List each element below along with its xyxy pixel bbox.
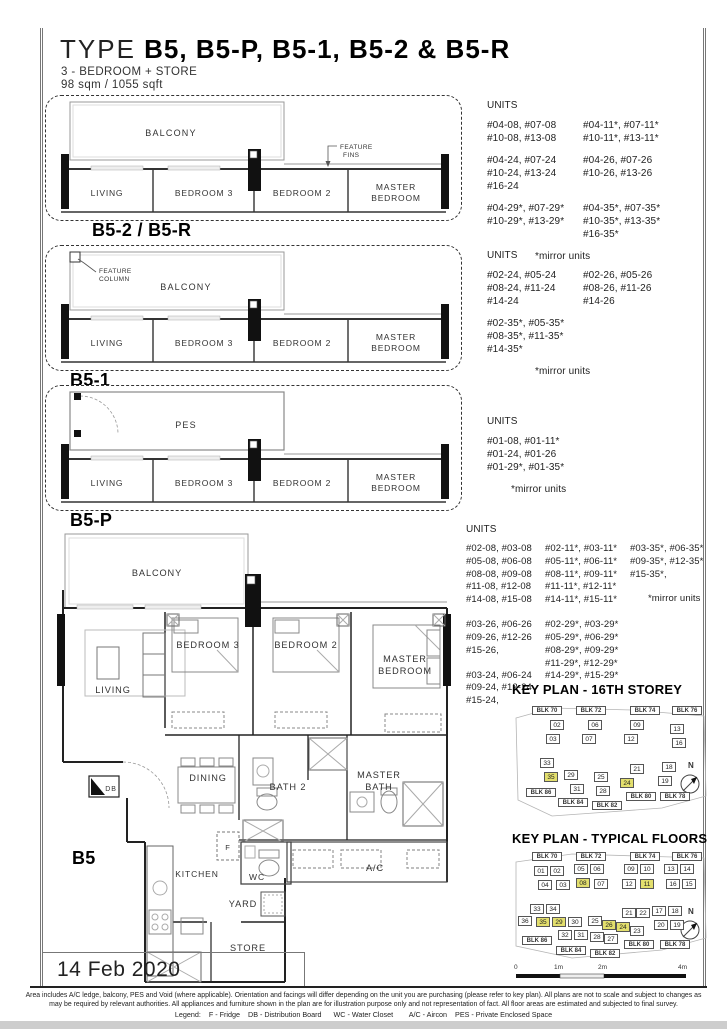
scale-label: 1m	[554, 964, 563, 971]
unit-list: #02-24, #05-24 #08-24, #11-24 #14-24	[487, 269, 583, 308]
key-plan-16: N BLK 70 BLK 72 BLK 74 BLK 76 02 03 06 0…	[512, 700, 714, 828]
block-label: BLK 80	[624, 940, 654, 949]
unit-list: #04-29*, #07-29* #10-29*, #13-29*	[487, 202, 583, 241]
footer-divider	[30, 986, 707, 988]
unit-marker: 02	[550, 720, 564, 730]
north-label: N	[688, 907, 694, 916]
units-title: UNITS	[487, 99, 717, 112]
footer-disclaimer-line2: may be required by relevant authorities.…	[0, 1000, 727, 1009]
page-frame-left	[40, 28, 43, 988]
scale-label: 0	[514, 964, 518, 971]
unit-marker: 30	[568, 917, 582, 927]
dining-furniture	[178, 758, 235, 813]
unit-marker-highlighted: 29	[552, 917, 566, 927]
floor-plan-b5-container: BALCONY LIVING BEDROOM 3 BEDROOM 2 MASTE…	[45, 530, 470, 985]
master-label-1: MASTER	[383, 654, 427, 664]
block-label: BLK 72	[576, 706, 606, 715]
unit-marker: 12	[622, 879, 636, 889]
units-panel-b5-2-b5-r: UNITS #04-08, #07-08 #10-08, #13-08#04-1…	[487, 99, 717, 263]
unit-list: #04-35*, #07-35* #10-35*, #13-35* #16-35…	[583, 202, 683, 241]
bedroom2-label: BEDROOM 2	[273, 478, 331, 488]
scale-label: 2m	[598, 964, 607, 971]
variant-label-b5-2-b5-r: B5-2 / B5-R	[92, 220, 191, 241]
balcony-label: BALCONY	[145, 128, 196, 138]
floor-plan-b5: BALCONY LIVING BEDROOM 3 BEDROOM 2 MASTE…	[45, 530, 470, 985]
unit-list: #04-26, #07-26 #10-26, #13-26	[583, 154, 683, 193]
unit-marker: 07	[582, 734, 596, 744]
unit-marker: 16	[672, 738, 686, 748]
compass-icon: N	[681, 761, 699, 793]
living-label: LIVING	[91, 478, 124, 488]
block-label: BLK 76	[672, 706, 702, 715]
bedroom2-label: BEDROOM 2	[273, 188, 331, 198]
unit-list: #02-26, #05-26 #08-26, #11-26 #14-26	[583, 269, 683, 308]
bedroom3-furniture	[167, 614, 238, 728]
bedroom2-label: BEDROOM 2	[273, 338, 331, 348]
unit-marker: 12	[624, 734, 638, 744]
plan-box-b5-1: FEATURE COLUMN BALCONY LIVING BEDROOM 3 …	[45, 245, 462, 371]
unit-marker-highlighted: 26	[602, 920, 616, 930]
block-label: BLK 74	[630, 706, 660, 715]
block-label: BLK 70	[532, 706, 562, 715]
living-label: LIVING	[91, 188, 124, 198]
block-label: BLK 76	[672, 852, 702, 861]
balcony-label: BALCONY	[160, 282, 211, 292]
units-panel-b5-p: UNITS #01-08, #01-11* #01-24, #01-26 #01…	[487, 415, 717, 496]
bedroom3-label: BEDROOM 3	[175, 338, 233, 348]
unit-marker: 36	[518, 916, 532, 926]
unit-marker: 22	[636, 908, 650, 918]
unit-marker: 03	[556, 880, 570, 890]
unit-marker-highlighted: 24	[616, 922, 630, 932]
mirror-units-note: *mirror units	[511, 483, 717, 496]
feature-fins-annotation: FEATURE FINS	[326, 144, 373, 167]
unit-marker: 32	[558, 930, 572, 940]
unit-marker: 34	[546, 904, 560, 914]
unit-marker-highlighted: 35	[536, 917, 550, 927]
block-label: BLK 86	[526, 788, 556, 797]
bedroom3-label: BEDROOM 3	[175, 478, 233, 488]
unit-marker-highlighted: 24	[620, 778, 634, 788]
ledge-cross-box	[243, 820, 283, 842]
page-edge-strip	[0, 1021, 727, 1029]
unit-list: #02-08, #03-08 #05-08, #06-08 #08-08, #0…	[466, 543, 545, 607]
title-prefix: TYPE	[60, 34, 136, 64]
unit-marker: 04	[538, 880, 552, 890]
block-label: BLK 84	[558, 798, 588, 807]
plan-box-b5-p: PES LIVING BEDROOM 3 BEDROOM 2 MASTER BE…	[45, 385, 462, 511]
variant-label-b5: B5	[72, 848, 96, 869]
unit-marker: 09	[624, 864, 638, 874]
unit-marker: 10	[640, 864, 654, 874]
block-label: BLK 80	[626, 792, 656, 801]
master-bath-label-2: BATH	[365, 782, 392, 792]
floor-plan-b5-2-b5-r: FEATURE FINS BALCONY LIVING BEDROOM 3 BE…	[46, 96, 459, 217]
variant-label-b5-p: B5-P	[70, 510, 112, 531]
unit-marker: 19	[670, 920, 684, 930]
mirror-units-note: *mirror units	[535, 365, 717, 378]
master-label-2: BEDROOM	[371, 343, 421, 353]
unit-marker: 14	[680, 864, 694, 874]
master-label-1: MASTER	[376, 332, 416, 342]
key-plan-typical-title: KEY PLAN - TYPICAL FLOORS	[512, 831, 707, 846]
unit-marker: 18	[668, 906, 682, 916]
unit-marker: 25	[594, 772, 608, 782]
living-label: LIVING	[91, 338, 124, 348]
block-label: BLK 86	[522, 936, 552, 945]
plan-box-b5-2-b5-r: FEATURE FINS BALCONY LIVING BEDROOM 3 BE…	[45, 95, 462, 221]
master-bath-fixtures	[350, 782, 443, 826]
unit-marker: 31	[574, 930, 588, 940]
scale-bar	[516, 974, 686, 978]
bath2-fixtures	[253, 738, 347, 810]
unit-marker: 28	[590, 932, 604, 942]
bedroom3-label: BEDROOM 3	[176, 640, 239, 650]
master-label-2: BEDROOM	[371, 193, 421, 203]
subtitle-bedroom: 3 - BEDROOM + STORE	[61, 66, 197, 78]
title-main: B5, B5-P, B5-1, B5-2 & B5-R	[144, 34, 510, 64]
master-label-1: MASTER	[376, 472, 416, 482]
unit-marker: 03	[546, 734, 560, 744]
footer-disclaimer-line1: Area includes A/C ledge, balcony, PES an…	[0, 991, 727, 1000]
unit-list: #03-26, #06-26 #09-26, #12-26 #15-26,	[466, 619, 545, 657]
scale-label: 4m	[678, 964, 687, 971]
bedroom3-label: BEDROOM 3	[175, 188, 233, 198]
unit-marker: 20	[654, 920, 668, 930]
wc-label: WC	[249, 872, 265, 882]
unit-marker: 09	[630, 720, 644, 730]
unit-marker: 31	[570, 784, 584, 794]
bath2-label: BATH 2	[270, 782, 307, 792]
feature-fins-label-2: FINS	[343, 152, 360, 159]
unit-list: #04-24, #07-24 #10-24, #13-24 #16-24	[487, 154, 583, 193]
unit-marker-highlighted: 35	[544, 772, 558, 782]
unit-marker: 15	[682, 879, 696, 889]
block-label: BLK 84	[556, 946, 586, 955]
balcony-label: BALCONY	[132, 568, 182, 578]
unit-list: #03-35*, #06-35* #09-35*, #12-35* #15-35…	[630, 543, 722, 581]
unit-marker: 07	[594, 879, 608, 889]
unit-list: #01-08, #01-11* #01-24, #01-26 #01-29*, …	[487, 435, 627, 474]
unit-marker: 21	[622, 908, 636, 918]
feature-column-annotation: FEATURE COLUMN	[78, 259, 132, 283]
floor-plan-b5-p: PES LIVING BEDROOM 3 BEDROOM 2 MASTER BE…	[46, 386, 459, 507]
floor-plan-page: { "page": { "title_prefix": "TYPE", "tit…	[0, 0, 727, 1029]
feature-column-label-1: FEATURE	[99, 268, 132, 275]
block-label: BLK 78	[660, 792, 690, 801]
block-label: BLK 78	[660, 940, 690, 949]
unit-marker: 05	[574, 864, 588, 874]
units-title: UNITS	[466, 523, 722, 536]
unit-list: #02-11*, #03-11* #05-11*, #06-11* #08-11…	[545, 543, 630, 607]
unit-marker-highlighted: 11	[640, 879, 654, 889]
north-label: N	[688, 761, 694, 770]
unit-marker: 28	[596, 786, 610, 796]
unit-marker: 17	[652, 906, 666, 916]
feature-column-label-2: COLUMN	[99, 276, 130, 283]
unit-list: #02-35*, #05-35* #08-35*, #11-35* #14-35…	[487, 317, 583, 356]
date-stamp: 14 Feb 2020	[42, 952, 305, 988]
block-label: BLK 70	[532, 852, 562, 861]
unit-marker-highlighted: 08	[576, 878, 590, 888]
floor-plan-b5-1: FEATURE COLUMN BALCONY LIVING BEDROOM 3 …	[46, 246, 459, 367]
unit-marker: 06	[590, 864, 604, 874]
yard-fixtures	[261, 892, 285, 916]
unit-marker: 21	[630, 764, 644, 774]
unit-list: #04-11*, #07-11* #10-11*, #13-11*	[583, 119, 683, 145]
block-label: BLK 74	[630, 852, 660, 861]
unit-marker: 13	[670, 724, 684, 734]
unit-marker: 33	[530, 904, 544, 914]
unit-marker: 13	[664, 864, 678, 874]
unit-marker: 18	[662, 762, 676, 772]
master-bath-label-1: MASTER	[357, 770, 401, 780]
unit-marker: 06	[588, 720, 602, 730]
subtitle-area: 98 sqm / 1055 sqft	[61, 79, 163, 91]
unit-list: #04-08, #07-08 #10-08, #13-08	[487, 119, 583, 145]
kitchen-label: KITCHEN	[175, 869, 219, 879]
master-label-2: BEDROOM	[371, 483, 421, 493]
key-plan-16-title: KEY PLAN - 16TH STOREY	[512, 682, 682, 697]
unit-marker: 01	[534, 866, 548, 876]
footer-legend: Legend: F - Fridge DB - Distribution Boa…	[0, 1010, 727, 1019]
bedroom2-furniture	[273, 614, 349, 728]
dining-label: DINING	[189, 773, 227, 783]
units-title: UNITS	[487, 249, 717, 262]
mirror-units-note: *mirror units	[648, 593, 722, 606]
units-title: UNITS	[487, 415, 717, 428]
footer: Area includes A/C ledge, balcony, PES an…	[0, 991, 727, 1019]
unit-marker: 29	[564, 770, 578, 780]
units-panel-b5-1: UNITS #02-24, #05-24 #08-24, #11-24 #14-…	[487, 249, 717, 378]
fridge-label: F	[225, 843, 230, 852]
yard-label: YARD	[229, 899, 257, 909]
unit-list	[583, 317, 683, 356]
ac-label: A/C	[366, 863, 384, 873]
unit-marker: 25	[588, 916, 602, 926]
unit-marker: 27	[604, 934, 618, 944]
unit-marker: 33	[540, 758, 554, 768]
ac-ledge	[287, 842, 447, 882]
block-label: BLK 82	[590, 949, 620, 958]
unit-list: #02-29*, #03-29* #05-29*, #06-29* #08-29…	[545, 619, 630, 683]
bedroom2-label: BEDROOM 2	[274, 640, 337, 650]
living-label: LIVING	[95, 685, 131, 695]
key-plan-typical: N BLK 70 BLK 72 BLK 74 BLK 76 01 02 04 0…	[512, 848, 714, 986]
pes-label: PES	[175, 420, 197, 430]
master-label-2: BEDROOM	[378, 666, 432, 676]
unit-marker: 16	[666, 879, 680, 889]
feature-fins-label-1: FEATURE	[340, 144, 373, 151]
block-label: BLK 72	[576, 852, 606, 861]
page-title: TYPE B5, B5-P, B5-1, B5-2 & B5-R	[60, 34, 510, 65]
unit-marker: 23	[630, 926, 644, 936]
unit-marker: 19	[658, 776, 672, 786]
master-label-1: MASTER	[376, 182, 416, 192]
block-label: BLK 82	[592, 801, 622, 810]
db-label: DB	[105, 786, 117, 793]
unit-marker: 02	[550, 866, 564, 876]
